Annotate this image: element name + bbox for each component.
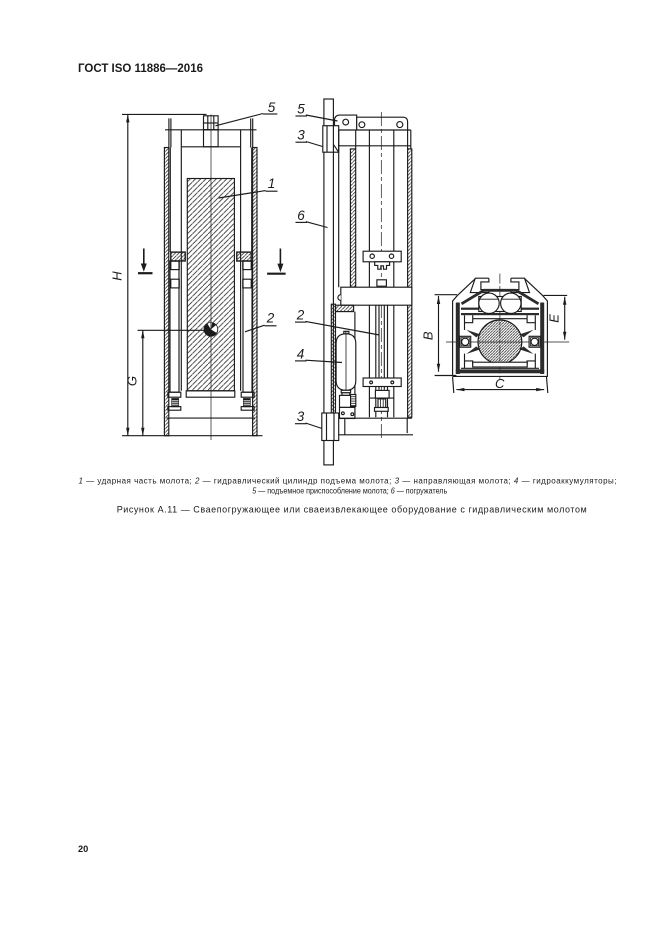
svg-text:2: 2 (266, 311, 275, 326)
svg-text:20: 20 (78, 844, 88, 854)
svg-text:C: C (495, 376, 505, 391)
svg-text:E: E (546, 314, 561, 323)
svg-text:B: B (421, 331, 436, 340)
svg-text:3: 3 (297, 128, 305, 143)
svg-text:4: 4 (297, 346, 305, 361)
svg-text:6: 6 (297, 208, 305, 223)
svg-text:5: 5 (297, 102, 305, 117)
svg-text:1: 1 (268, 176, 276, 191)
svg-text:3: 3 (297, 409, 305, 424)
svg-text:1 — ударная часть молота; 2 —: 1 — ударная часть молота; 2 — гидравличе… (79, 476, 617, 485)
svg-text:5: 5 (268, 100, 276, 115)
svg-text:H: H (110, 271, 125, 281)
svg-text:5 — подъемное приспособление м: 5 — подъемное приспособление молота; 6 —… (252, 486, 447, 495)
svg-text:2: 2 (296, 308, 305, 323)
svg-text:ГОСТ ISO 11886—2016: ГОСТ ISO 11886—2016 (78, 63, 203, 75)
svg-text:Рисунок А.11 — Сваепогружающее: Рисунок А.11 — Сваепогружающее или сваеи… (117, 505, 587, 515)
svg-text:G: G (125, 376, 140, 386)
